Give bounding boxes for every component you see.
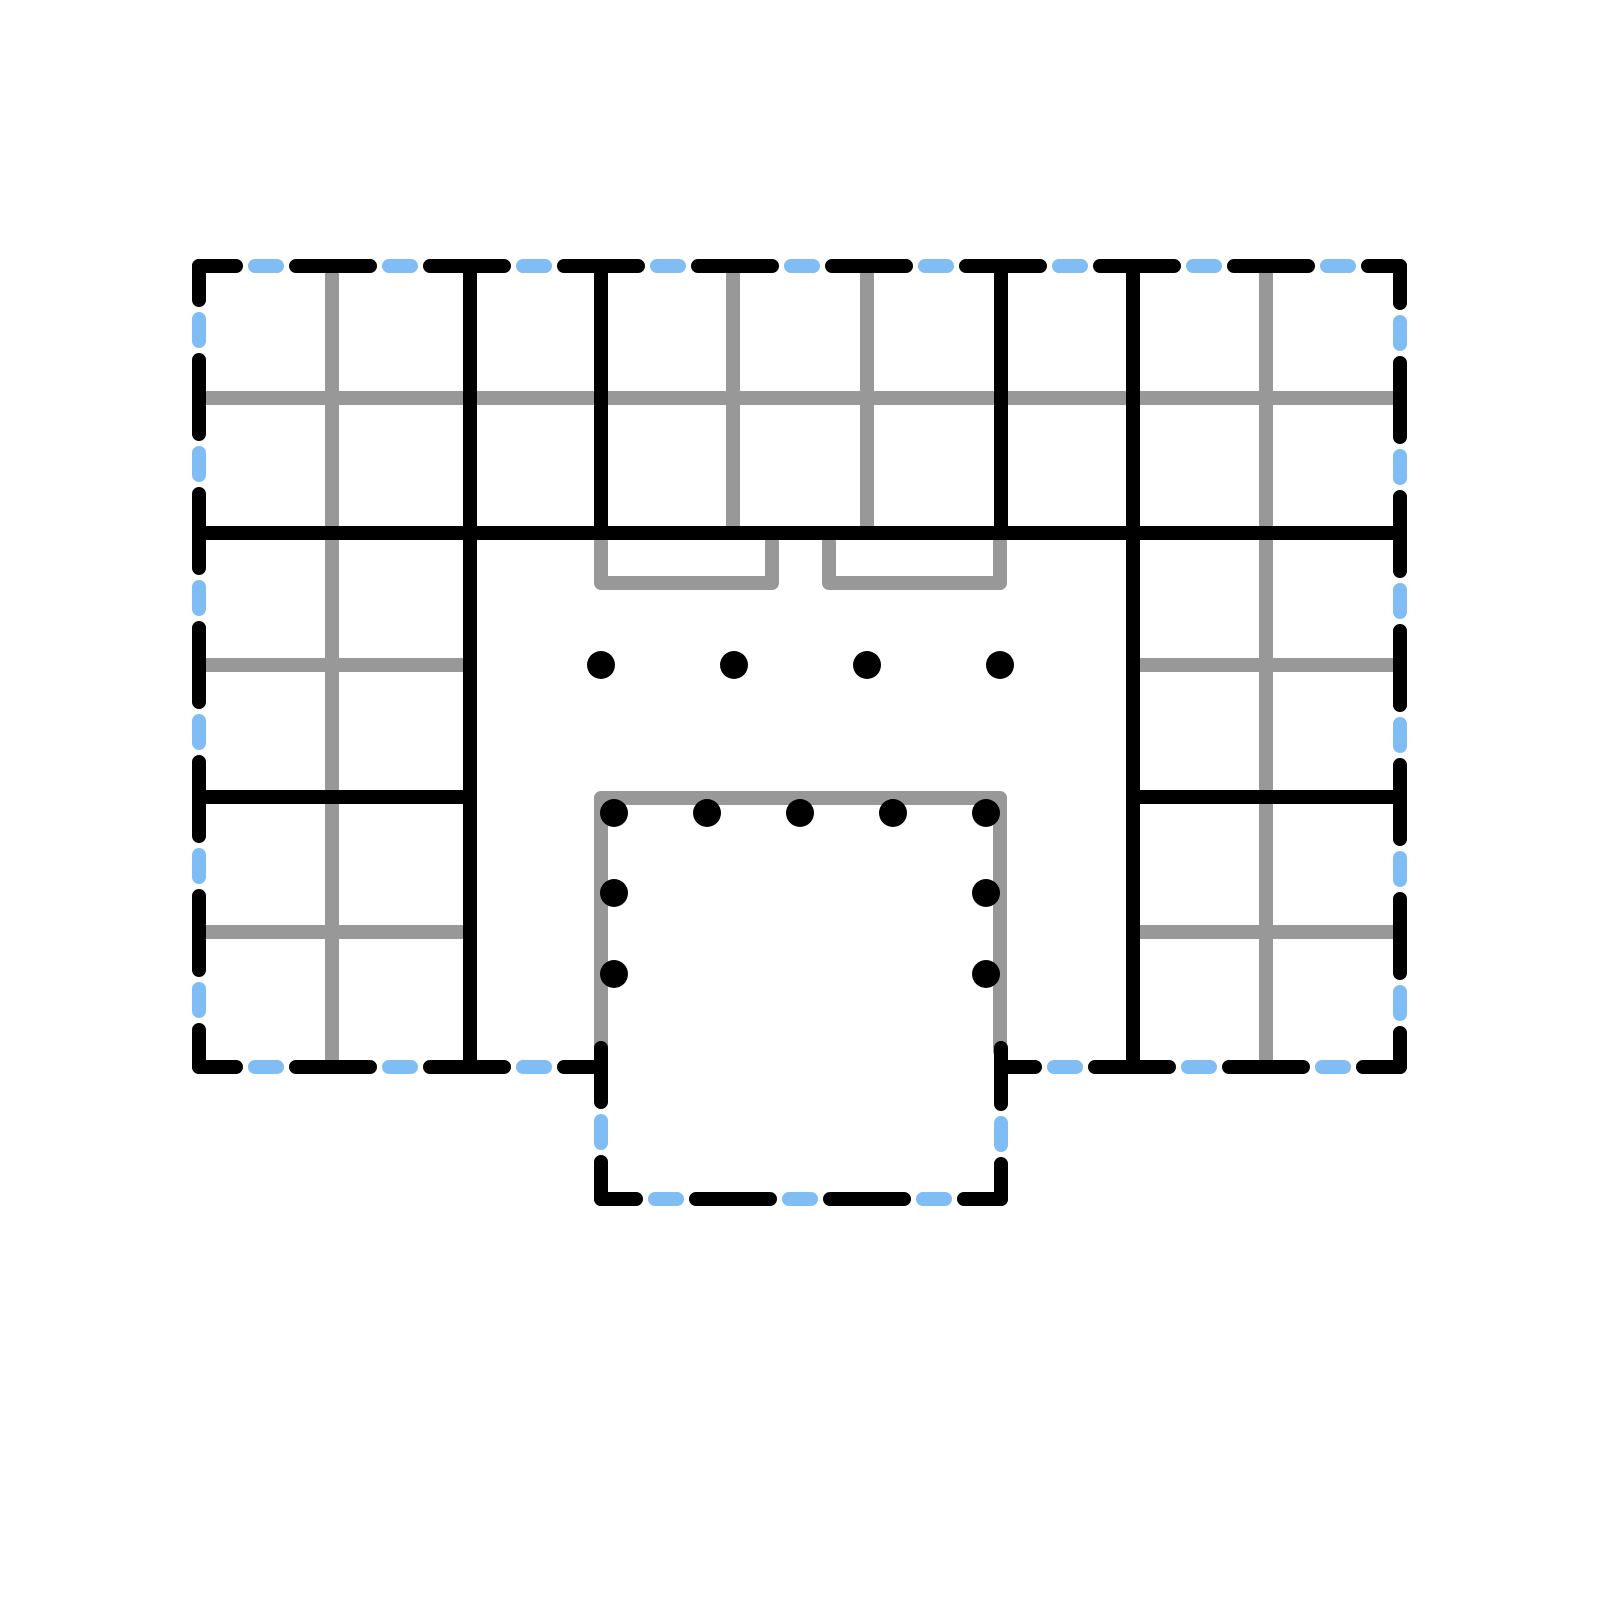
- partition-grid-layer: [206, 274, 1393, 1059]
- floor-plan-diagram: [0, 0, 1600, 1600]
- floor-plan-canvas: [0, 0, 1600, 1600]
- column-dot: [972, 799, 1000, 827]
- column-dot: [693, 799, 721, 827]
- exterior-boundary-black-layer: [199, 266, 1400, 1199]
- door-recess-right: [829, 542, 1000, 583]
- column-dot: [600, 960, 628, 988]
- column-dot: [600, 879, 628, 907]
- column-dot: [786, 799, 814, 827]
- door-recess-left: [601, 542, 772, 583]
- column-dot: [587, 651, 615, 679]
- column-dot: [720, 651, 748, 679]
- inner-room-outline: [601, 798, 1000, 1051]
- column-dot: [879, 799, 907, 827]
- page: [0, 0, 1600, 1600]
- exterior-boundary-blue-layer: [199, 266, 1400, 1199]
- column-dot: [986, 651, 1014, 679]
- column-dot: [972, 960, 1000, 988]
- column-dot: [972, 879, 1000, 907]
- column-dots-layer: [587, 651, 1014, 988]
- column-dot: [600, 799, 628, 827]
- column-dot: [853, 651, 881, 679]
